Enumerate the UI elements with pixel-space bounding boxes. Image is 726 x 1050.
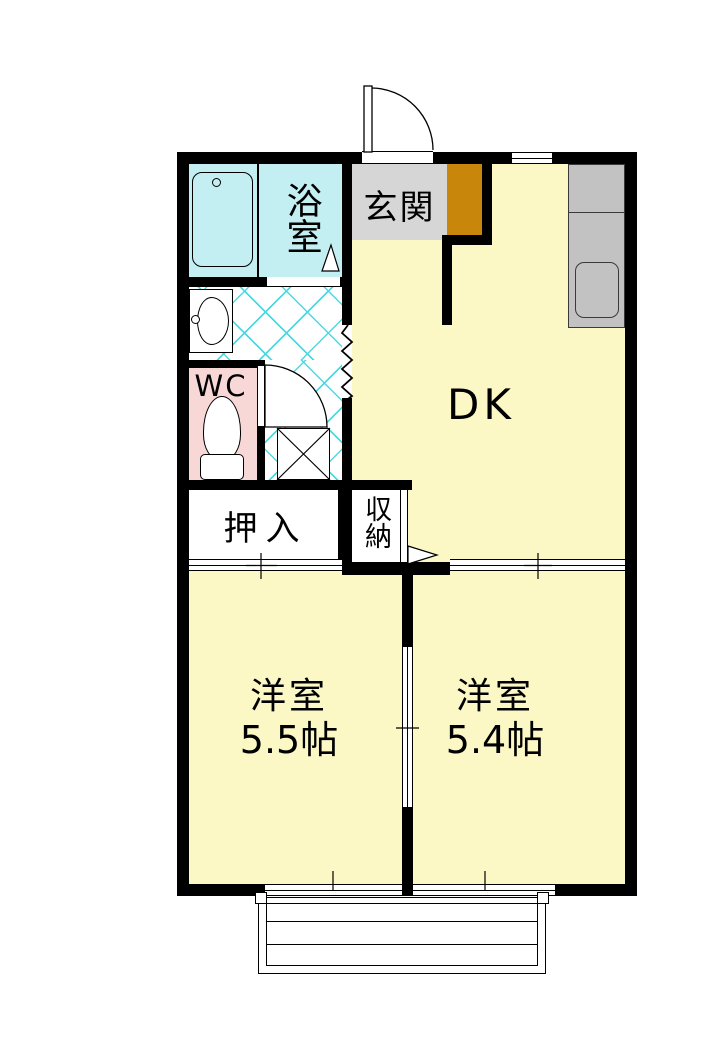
bathroom-label: 浴室 — [281, 182, 321, 254]
bedroom-left-size: 5.5帖 — [240, 718, 338, 763]
bedroom-right-label: 洋室 5.4帖 — [410, 676, 580, 763]
labels-layer: 玄関 浴室 DK WC 押入 収納 洋室 5.5帖 洋室 5.4帖 — [0, 0, 726, 1050]
oshiire-label: 押入 — [189, 501, 342, 550]
floor-plan-canvas: 玄関 浴室 DK WC 押入 収納 洋室 5.5帖 洋室 5.4帖 — [0, 0, 726, 1050]
shuunou-label: 収納 — [360, 495, 391, 549]
dk-label: DK — [447, 380, 515, 429]
bedroom-right-name: 洋室 — [456, 676, 534, 718]
wc-label: WC — [185, 369, 257, 403]
genkan-label: 玄関 — [352, 180, 447, 229]
bedroom-right-size: 5.4帖 — [446, 718, 544, 763]
bedroom-left-label: 洋室 5.5帖 — [194, 676, 384, 763]
bedroom-left-name: 洋室 — [250, 676, 328, 718]
